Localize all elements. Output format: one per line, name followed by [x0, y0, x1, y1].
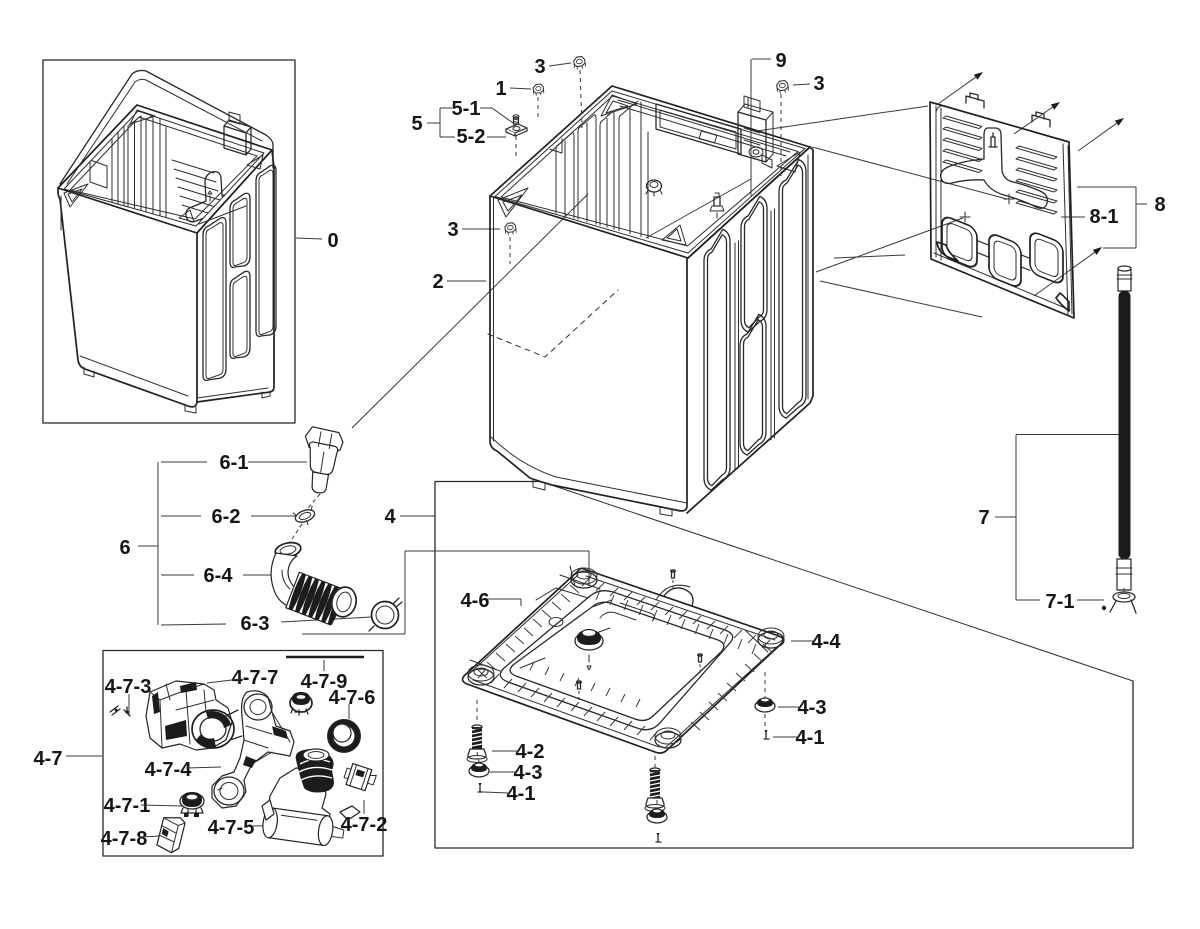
svg-text:8: 8	[1154, 194, 1165, 216]
svg-text:4-7-8: 4-7-8	[101, 828, 148, 850]
svg-text:4-7-5: 4-7-5	[208, 817, 255, 839]
svg-text:5-1: 5-1	[452, 98, 481, 120]
svg-text:6-1: 6-1	[220, 452, 249, 474]
svg-text:4-1: 4-1	[507, 783, 536, 805]
svg-text:6-2: 6-2	[212, 506, 241, 528]
svg-text:4: 4	[384, 506, 396, 528]
svg-text:7-1: 7-1	[1046, 591, 1075, 613]
svg-text:4-7: 4-7	[34, 748, 63, 770]
svg-text:3: 3	[447, 219, 458, 241]
svg-text:9: 9	[775, 50, 786, 72]
svg-text:4-7-6: 4-7-6	[329, 687, 376, 709]
svg-text:2: 2	[432, 271, 443, 293]
svg-text:5: 5	[411, 113, 422, 135]
svg-text:4-7-2: 4-7-2	[341, 814, 388, 836]
svg-text:4-3: 4-3	[798, 697, 827, 719]
svg-text:6-4: 6-4	[204, 565, 234, 587]
svg-text:4-2: 4-2	[516, 741, 545, 763]
svg-text:4-7-3: 4-7-3	[105, 676, 152, 698]
svg-text:4-7-7: 4-7-7	[232, 667, 279, 689]
svg-text:4-4: 4-4	[812, 631, 842, 653]
svg-text:5-2: 5-2	[457, 126, 486, 148]
svg-text:8-1: 8-1	[1090, 206, 1119, 228]
svg-text:3: 3	[534, 56, 545, 78]
svg-text:4-7-4: 4-7-4	[145, 759, 193, 781]
svg-text:1: 1	[495, 78, 506, 100]
svg-text:4-3: 4-3	[514, 762, 543, 784]
svg-text:4-1: 4-1	[796, 727, 825, 749]
svg-text:4-7-1: 4-7-1	[104, 795, 151, 817]
svg-text:3: 3	[813, 73, 824, 95]
svg-text:4-6: 4-6	[461, 590, 490, 612]
svg-text:6-3: 6-3	[241, 613, 270, 635]
svg-text:6: 6	[119, 537, 130, 559]
svg-text:7: 7	[978, 507, 989, 529]
svg-text:0: 0	[327, 230, 338, 252]
